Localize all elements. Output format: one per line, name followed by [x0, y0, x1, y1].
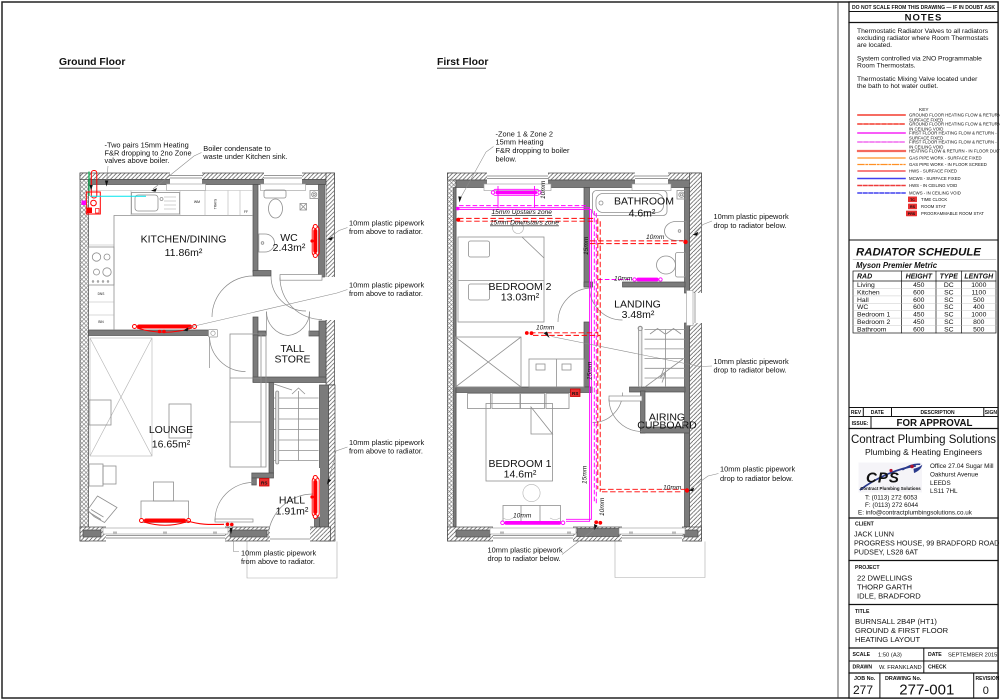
svg-text:Bathroom: Bathroom [857, 327, 887, 334]
svg-text:10mm: 10mm [536, 325, 555, 332]
svg-text:GAS PIPE WORK - IN FLOOR SCREE: GAS PIPE WORK - IN FLOOR SCREED [909, 162, 987, 167]
svg-text:HEIGHT: HEIGHT [906, 274, 933, 281]
svg-text:System controlled via 2NO Prog: System controlled via 2NO Programmable [857, 56, 982, 63]
svg-text:500: 500 [973, 327, 985, 334]
svg-text:E: info@contractplumbingsoluti: E: info@contractplumbingsolutions.co.uk [858, 510, 973, 517]
svg-text:PRS: PRS [908, 212, 916, 216]
svg-text:BIN: BIN [98, 320, 104, 324]
svg-text:ROOM STAT: ROOM STAT [921, 204, 946, 209]
svg-text:1.91m²: 1.91m² [276, 506, 309, 518]
svg-text:Living: Living [857, 282, 875, 289]
svg-text:GAS PIPE WORK - SURFACE FIXED: GAS PIPE WORK - SURFACE FIXED [909, 156, 982, 161]
svg-text:1000: 1000 [971, 312, 986, 319]
svg-text:400: 400 [973, 304, 985, 311]
svg-text:DRAWN: DRAWN [853, 665, 873, 671]
svg-text:FOR APPROVAL: FOR APPROVAL [897, 418, 973, 429]
svg-text:NOTES: NOTES [905, 13, 943, 24]
svg-text:the bath to hot water outlet.: the bath to hot water outlet. [857, 83, 938, 90]
svg-text:0: 0 [983, 685, 989, 697]
svg-text:SC: SC [944, 319, 954, 326]
svg-text:14.6m²: 14.6m² [504, 469, 537, 481]
svg-text:waste under Kitchen sink.: waste under Kitchen sink. [202, 152, 287, 161]
svg-text:15mm: 15mm [583, 236, 590, 255]
svg-text:4.6m²: 4.6m² [629, 208, 656, 220]
svg-text:CPS: CPS [866, 470, 900, 487]
svg-text:22 DWELLINGS: 22 DWELLINGS [857, 574, 912, 583]
svg-text:LENTGH: LENTGH [964, 274, 994, 281]
svg-text:TITLE: TITLE [855, 609, 870, 615]
svg-text:STORE: STORE [275, 354, 311, 366]
svg-text:valves above boiler.: valves above boiler. [105, 156, 170, 165]
svg-text:CUPBOARD: CUPBOARD [637, 420, 697, 432]
svg-text:450: 450 [913, 319, 925, 326]
svg-text:below.: below. [496, 155, 517, 164]
svg-text:15mm Downstairs zone: 15mm Downstairs zone [490, 220, 559, 227]
svg-text:JOB No.: JOB No. [854, 676, 876, 682]
svg-text:10mm: 10mm [646, 234, 665, 241]
svg-text:10mm: 10mm [599, 497, 606, 516]
svg-text:15mm: 15mm [587, 361, 594, 380]
svg-text:13.03m²: 13.03m² [501, 292, 540, 304]
svg-text:MCWS - IN CEILING VOID: MCWS - IN CEILING VOID [909, 191, 961, 196]
svg-text:500: 500 [973, 297, 985, 304]
svg-text:600: 600 [913, 297, 925, 304]
svg-text:RAD: RAD [857, 274, 872, 281]
svg-text:1:50 (A3): 1:50 (A3) [878, 653, 902, 659]
svg-text:1000: 1000 [971, 282, 986, 289]
svg-text:15mm Upstairs zone: 15mm Upstairs zone [492, 209, 553, 216]
svg-text:TYPE: TYPE [940, 274, 959, 281]
svg-text:1100: 1100 [971, 289, 986, 296]
svg-text:drop to radiator below.: drop to radiator below. [720, 474, 793, 483]
svg-text:600: 600 [913, 289, 925, 296]
svg-text:CLIENT: CLIENT [855, 522, 875, 528]
svg-text:THORP GARTH: THORP GARTH [857, 583, 912, 592]
svg-text:10mm: 10mm [540, 180, 547, 199]
svg-text:Myson Premier Metric: Myson Premier Metric [856, 261, 938, 270]
svg-text:BURNSALL 2B4P (HT1): BURNSALL 2B4P (HT1) [855, 617, 937, 626]
svg-text:SC: SC [944, 289, 954, 296]
svg-text:600: 600 [913, 304, 925, 311]
svg-text:DATE: DATE [928, 652, 942, 658]
svg-text:Oakhurst Avenue: Oakhurst Avenue [930, 472, 979, 479]
svg-text:FF: FF [244, 210, 248, 214]
svg-text:TC: TC [910, 198, 915, 202]
svg-text:10mm: 10mm [663, 485, 682, 492]
svg-text:DO NOT SCALE FROM THIS DRAWING: DO NOT SCALE FROM THIS DRAWING — IF IN D… [852, 5, 995, 11]
svg-text:Contract Plumbing Solutions: Contract Plumbing Solutions [851, 434, 996, 446]
svg-text:Kitchen: Kitchen [857, 289, 880, 296]
svg-text:Bedroom 1: Bedroom 1 [857, 312, 890, 319]
svg-text:3.48m²: 3.48m² [622, 309, 655, 321]
svg-text:from above to radiator.: from above to radiator. [349, 227, 423, 236]
svg-text:F: (0113) 272 6044: F: (0113) 272 6044 [865, 502, 919, 509]
svg-text:10mm plastic pipework: 10mm plastic pipework [714, 212, 789, 221]
svg-text:GROUND & FIRST FLOOR: GROUND & FIRST FLOOR [855, 626, 949, 635]
svg-text:HWS - SURFACE FIXED: HWS - SURFACE FIXED [909, 169, 957, 174]
svg-text:JACK LUNN: JACK LUNN [854, 530, 894, 539]
svg-text:SCALE: SCALE [853, 652, 871, 658]
svg-text:11.86m²: 11.86m² [165, 247, 203, 259]
svg-text:277: 277 [853, 683, 873, 697]
svg-text:RS: RS [910, 205, 916, 209]
svg-text:TRAYS: TRAYS [214, 199, 218, 209]
svg-text:LEEDS: LEEDS [930, 480, 951, 487]
svg-text:Contract Plumbing Solutions: Contract Plumbing Solutions [860, 486, 921, 491]
svg-text:PROGRAMMABLE ROOM STAT: PROGRAMMABLE ROOM STAT [921, 211, 984, 216]
svg-text:600: 600 [913, 327, 925, 334]
svg-text:ISSUE:: ISSUE: [852, 421, 869, 427]
svg-text:Office 27.04 Sugar Mill: Office 27.04 Sugar Mill [930, 463, 994, 470]
svg-text:SIGN: SIGN [985, 410, 998, 416]
svg-text:DC: DC [944, 282, 954, 289]
svg-text:W. FRANKLAND: W. FRANKLAND [879, 665, 922, 671]
svg-text:drop to radiator below.: drop to radiator below. [488, 554, 561, 563]
svg-text:Plumbing & Heating Engineers: Plumbing & Heating Engineers [865, 447, 982, 457]
svg-text:DATE: DATE [871, 410, 885, 416]
svg-text:SC: SC [944, 297, 954, 304]
svg-text:from above to radiator.: from above to radiator. [349, 447, 423, 456]
svg-text:TIME CLOCK: TIME CLOCK [921, 197, 947, 202]
svg-text:Room Thermostats.: Room Thermostats. [857, 63, 916, 70]
svg-text:drop to radiator below.: drop to radiator below. [714, 221, 787, 230]
svg-text:BATHROOM: BATHROOM [614, 196, 674, 208]
svg-text:450: 450 [913, 312, 925, 319]
svg-text:T: (0113) 272 6053: T: (0113) 272 6053 [865, 495, 918, 502]
svg-text:from above to radiator.: from above to radiator. [349, 289, 423, 298]
svg-text:RADIATOR SCHEDULE: RADIATOR SCHEDULE [856, 247, 981, 259]
svg-text:LOUNGE: LOUNGE [149, 424, 193, 436]
svg-text:REV: REV [851, 410, 862, 416]
svg-text:RS: RS [572, 391, 578, 396]
svg-text:SC: SC [944, 304, 954, 311]
svg-text:15mm: 15mm [582, 465, 589, 484]
svg-text:HWS - IN CEILING VOID: HWS - IN CEILING VOID [909, 183, 957, 188]
svg-text:DNS: DNS [98, 292, 105, 296]
svg-text:PUDSEY, LS28 6AT: PUDSEY, LS28 6AT [854, 548, 919, 557]
svg-text:are located.: are located. [857, 42, 892, 49]
svg-text:RS: RS [261, 480, 267, 485]
svg-text:PROJECT: PROJECT [855, 565, 880, 571]
svg-text:HEATING LAYOUT: HEATING LAYOUT [855, 635, 920, 644]
svg-text:Thermostatic Radiator Valves t: Thermostatic Radiator Valves to all radi… [857, 28, 989, 35]
svg-text:SEPTEMBER 2015: SEPTEMBER 2015 [948, 653, 997, 659]
svg-text:800: 800 [973, 319, 985, 326]
svg-text:excluding radiator where Room: excluding radiator where Room Thermostat… [857, 35, 989, 42]
svg-text:REVISION: REVISION [976, 676, 1000, 682]
svg-text:MCWS - SURFACE FIXED: MCWS - SURFACE FIXED [909, 176, 961, 181]
svg-text:PROGRESS HOUSE, 99 BRADFORD RO: PROGRESS HOUSE, 99 BRADFORD ROAD [854, 539, 999, 548]
svg-text:277-001: 277-001 [899, 682, 954, 699]
svg-text:Bedroom 2: Bedroom 2 [857, 319, 890, 326]
svg-text:from above to radiator.: from above to radiator. [241, 557, 315, 566]
svg-text:450: 450 [913, 282, 925, 289]
svg-text:SC: SC [944, 312, 954, 319]
svg-text:WC: WC [857, 304, 868, 311]
svg-text:10mm: 10mm [614, 276, 633, 283]
svg-text:LS11 7HL: LS11 7HL [930, 488, 958, 495]
svg-text:First Floor: First Floor [437, 57, 488, 68]
svg-text:Thermostatic Mixing Valve loca: Thermostatic Mixing Valve located under [857, 76, 978, 83]
svg-text:CHECK: CHECK [928, 665, 947, 671]
svg-text:10mm: 10mm [513, 513, 532, 520]
svg-text:KITCHEN/DINING: KITCHEN/DINING [141, 234, 227, 246]
svg-text:Hall: Hall [857, 297, 869, 304]
svg-text:2.43m²: 2.43m² [273, 242, 306, 254]
svg-text:Ground Floor: Ground Floor [59, 57, 125, 68]
svg-text:HEATING FLOW & RETURN - IN FLO: HEATING FLOW & RETURN - IN FLOOR DUCT [909, 149, 1000, 154]
svg-text:DESCRIPTION: DESCRIPTION [921, 410, 956, 416]
svg-text:WM: WM [194, 200, 200, 204]
svg-text:drop to radiator below.: drop to radiator below. [714, 366, 787, 375]
svg-text:IDLE, BRADFORD: IDLE, BRADFORD [857, 592, 921, 601]
svg-text:16.65m²: 16.65m² [152, 439, 191, 451]
svg-text:10mm plastic pipework: 10mm plastic pipework [720, 465, 795, 474]
svg-text:SC: SC [944, 327, 954, 334]
